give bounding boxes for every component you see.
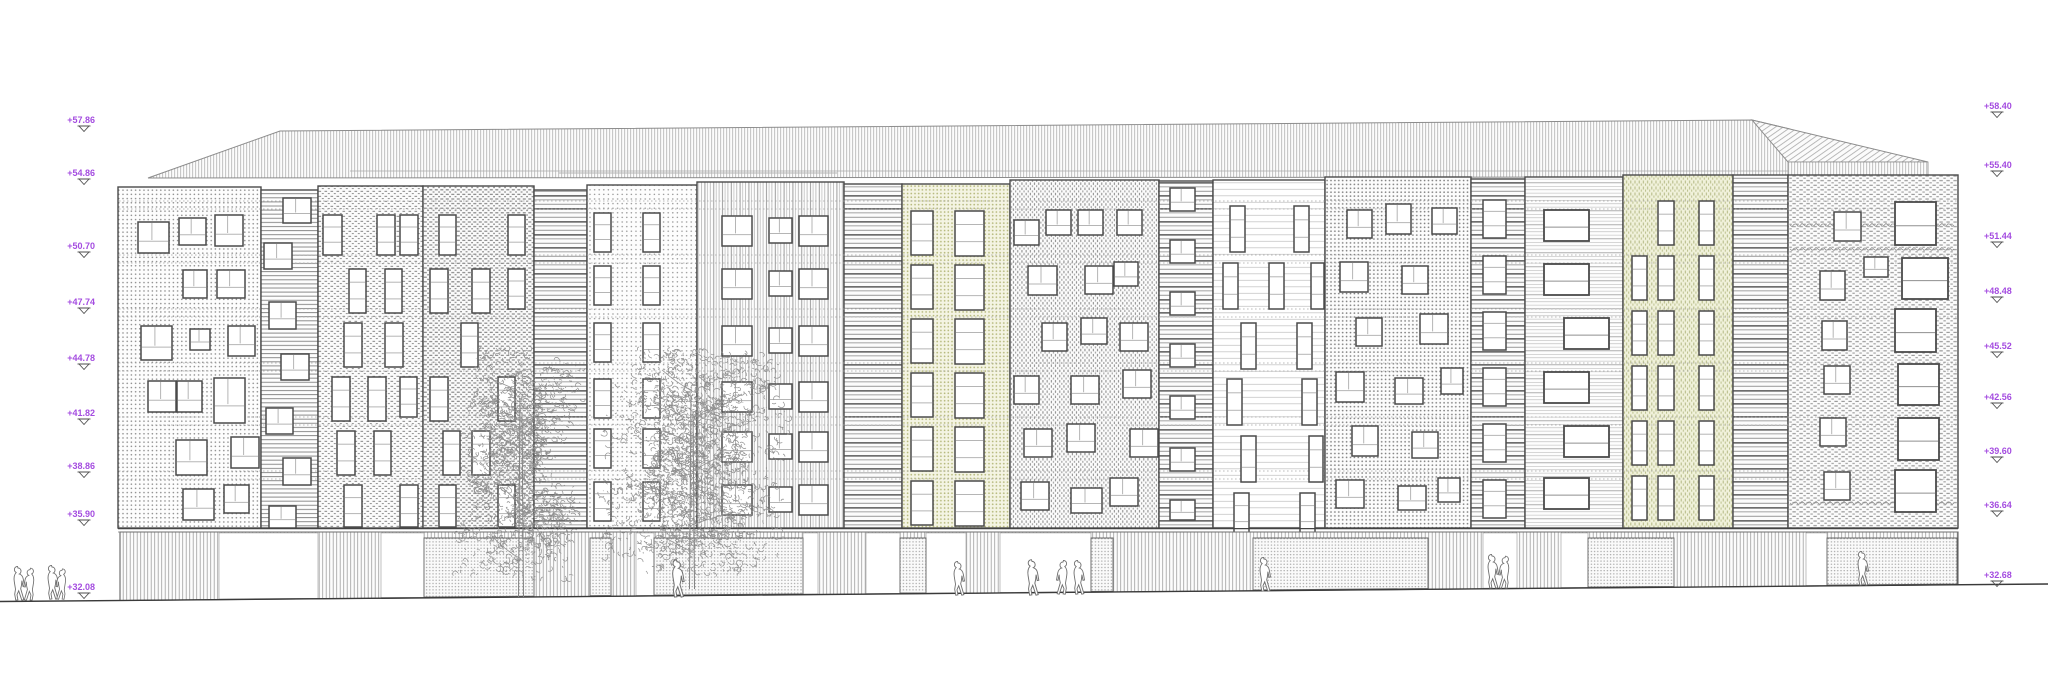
svg-text:+42.56: +42.56 xyxy=(1984,392,2012,402)
svg-text:+41.82: +41.82 xyxy=(67,408,95,418)
svg-text:+36.64: +36.64 xyxy=(1984,500,2012,510)
svg-text:+47.74: +47.74 xyxy=(67,297,95,307)
svg-text:+32.68: +32.68 xyxy=(1984,570,2012,580)
svg-text:+44.78: +44.78 xyxy=(67,353,95,363)
svg-text:+38.86: +38.86 xyxy=(67,461,95,471)
svg-text:+50.70: +50.70 xyxy=(67,241,95,251)
svg-text:+45.52: +45.52 xyxy=(1984,341,2012,351)
svg-text:+32.08: +32.08 xyxy=(67,582,95,592)
svg-text:+58.40: +58.40 xyxy=(1984,101,2012,111)
svg-text:+57.86: +57.86 xyxy=(67,115,95,125)
svg-text:+48.48: +48.48 xyxy=(1984,286,2012,296)
svg-text:+35.90: +35.90 xyxy=(67,509,95,519)
svg-text:+54.86: +54.86 xyxy=(67,168,95,178)
svg-text:+55.40: +55.40 xyxy=(1984,160,2012,170)
svg-text:+51.44: +51.44 xyxy=(1984,231,2012,241)
svg-text:+39.60: +39.60 xyxy=(1984,446,2012,456)
